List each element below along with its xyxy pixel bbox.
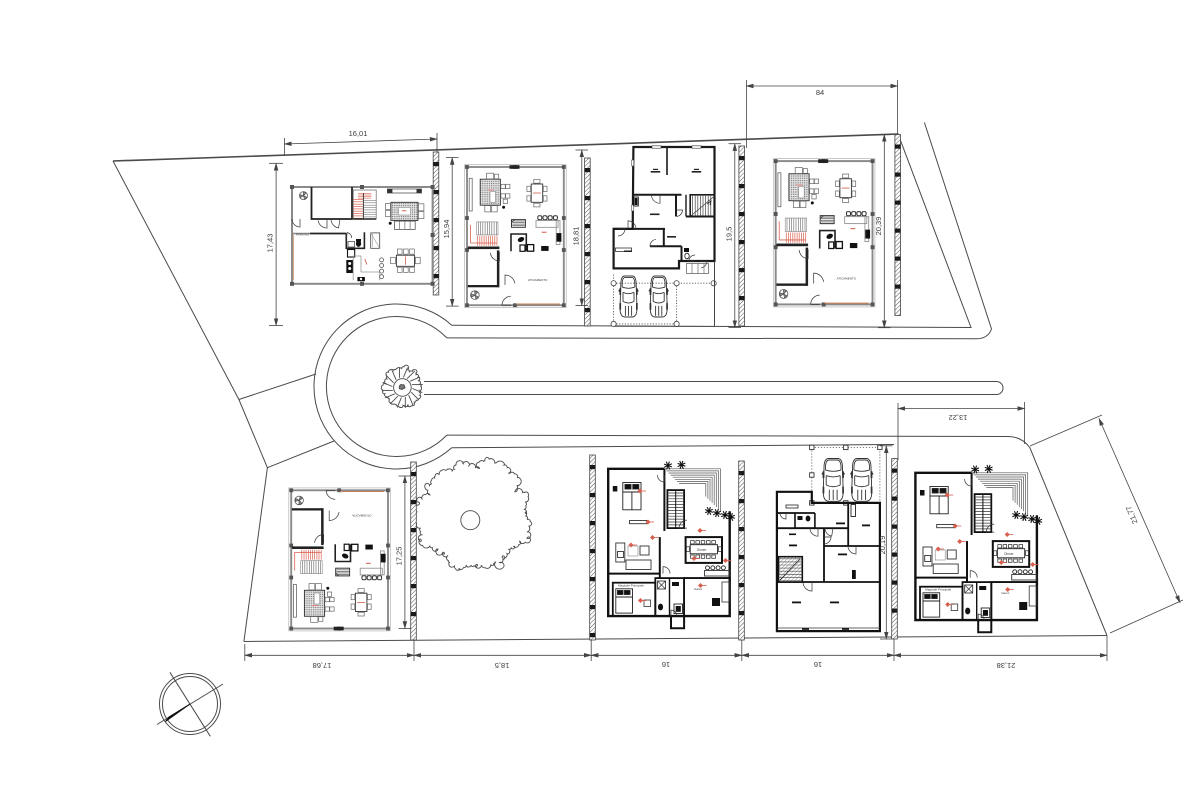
svg-text:17,68: 17,68	[313, 661, 332, 670]
svg-text:Magicale Principale: Magicale Principale	[925, 588, 951, 592]
svg-text:20,19: 20,19	[878, 536, 887, 555]
svg-text:84: 84	[816, 88, 824, 97]
svg-text:Garez: Garez	[1001, 591, 1010, 595]
svg-text:Magicale Principale: Magicale Principale	[618, 584, 644, 588]
svg-text:16,01: 16,01	[349, 129, 368, 138]
svg-text:ATICAMENTO: ATICAMENTO	[837, 276, 857, 280]
svg-text:ATICAMENTO: ATICAMENTO	[528, 278, 548, 282]
svg-text:16: 16	[662, 660, 670, 669]
svg-text:13,22: 13,22	[949, 413, 968, 422]
svg-text:ATICAMENTO: ATICAMENTO	[352, 514, 372, 518]
svg-text:Dinner: Dinner	[697, 548, 707, 552]
svg-text:20,39: 20,39	[874, 217, 883, 236]
svg-text:19,5: 19,5	[725, 227, 734, 242]
svg-text:16: 16	[814, 660, 822, 669]
svg-text:Dinner: Dinner	[1004, 552, 1014, 556]
svg-text:17,25: 17,25	[395, 547, 404, 566]
svg-text:18,81: 18,81	[572, 227, 581, 246]
svg-text:Garez: Garez	[694, 587, 703, 591]
svg-text:17,43: 17,43	[266, 234, 275, 253]
svg-text:PARKING: PARKING	[296, 232, 310, 236]
svg-text:21,38: 21,38	[997, 661, 1016, 670]
svg-text:18,5: 18,5	[495, 661, 510, 670]
svg-text:15,94: 15,94	[442, 220, 451, 239]
